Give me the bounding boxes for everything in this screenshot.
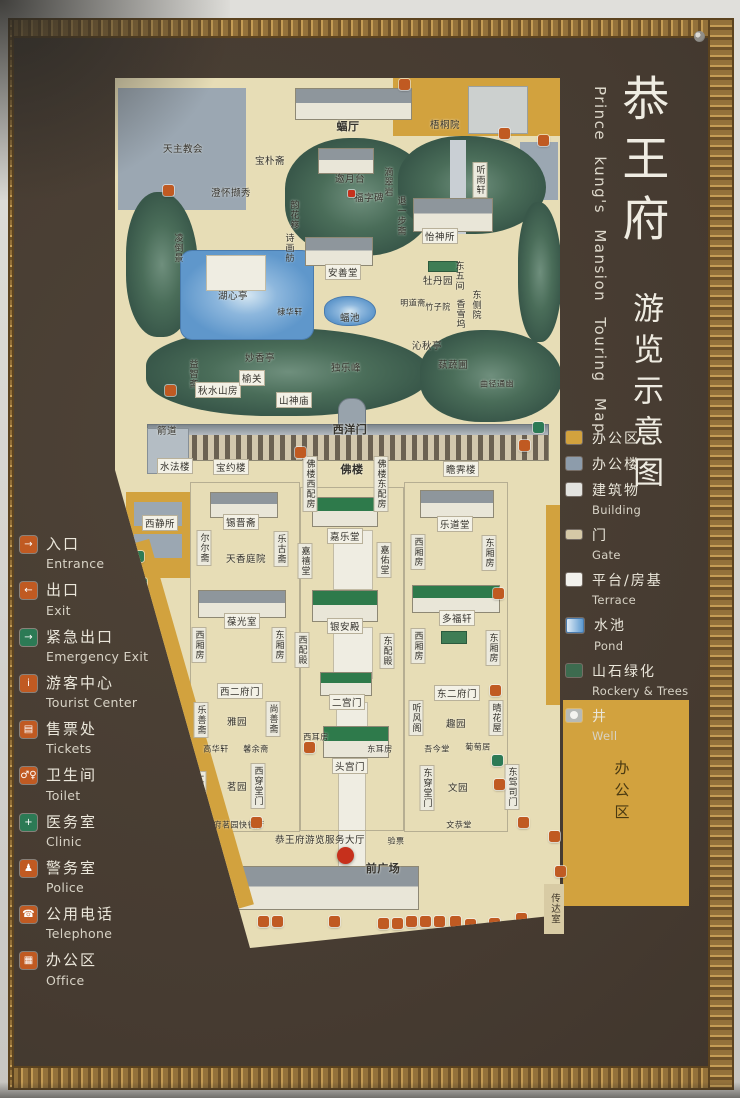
legend-item-telephone: ☎ 公用电话 Telephone	[20, 904, 160, 942]
legend-label-en: Police	[46, 880, 84, 895]
tickets-icon: ▤	[20, 721, 37, 738]
map-label: 宝约楼	[213, 459, 249, 475]
legend-item-tourist-center: i 游客中心 Tourist Center	[20, 673, 160, 711]
map-label: 蝠厅	[337, 118, 360, 134]
legend-label-en: Clinic	[46, 834, 82, 849]
map-label: 西二府门	[217, 683, 263, 699]
tickets-icon	[420, 916, 431, 927]
legend-label-en: Gate	[592, 548, 621, 562]
map-label: 葡萄居	[465, 742, 491, 753]
map-label: 东二府门	[434, 685, 480, 701]
map-label: 东五间	[453, 261, 466, 291]
legend-label-en: Office	[46, 973, 84, 988]
map-label: 福字碑	[354, 190, 384, 204]
gate-marker-icon	[258, 916, 269, 927]
legend-label-zh: 紧急出口	[46, 628, 114, 646]
building-swatch	[566, 483, 582, 496]
toilet-icon	[490, 685, 501, 696]
ledaotang-building	[420, 490, 494, 518]
police-icon: ♟	[20, 860, 37, 877]
map-label: 文恭堂	[446, 820, 472, 831]
map-label: 牡丹园	[423, 273, 453, 287]
legend-item-police: ♟ 警务室 Police	[20, 858, 160, 896]
map-label: 香雪坞	[454, 299, 467, 329]
map-label: 西厢房	[411, 628, 426, 664]
map-label: 听风阁	[409, 700, 424, 736]
legend-label-en: Pond	[594, 639, 623, 653]
futing-building	[295, 88, 412, 120]
anshantang-building	[305, 237, 373, 266]
map-label: 头宫门	[332, 758, 368, 774]
legend-label-zh: 卫生间	[46, 766, 97, 784]
legend-item-clinic: + 医务室 Clinic	[20, 812, 160, 850]
legend-label-zh: 出口	[46, 581, 80, 599]
jialetang-building	[312, 497, 378, 527]
map-label: 秋水山房	[195, 382, 241, 398]
police-icon	[518, 817, 529, 828]
toilet-icon	[538, 135, 549, 146]
current-location-dot	[337, 847, 354, 864]
ergongmen-building	[320, 672, 372, 696]
emergency-exit-icon	[533, 422, 544, 433]
map-label: 西耳房	[303, 732, 329, 743]
fuzibei-marker-icon	[348, 190, 355, 197]
map-label: 葆光室	[224, 613, 260, 629]
gate-marker-icon	[272, 916, 283, 927]
legend-label-en: Entrance	[46, 556, 104, 571]
title-english: Prince kung's Mansion Touring Map	[591, 86, 609, 434]
legend-label-en: Tourist Center	[46, 695, 137, 710]
legend-item-exit: ← 出口 Exit	[20, 580, 160, 618]
map-label: 东厢房	[272, 627, 287, 663]
map-label: 安善堂	[325, 264, 361, 280]
toilet-icon: ♂♀	[20, 767, 37, 784]
tourist-center-icon: i	[20, 675, 37, 692]
map-label: 竹子院	[425, 302, 451, 313]
legend-item-gate: 门 Gate	[566, 525, 726, 563]
legend-label-en: Emergency Exit	[46, 649, 148, 664]
exit-icon	[494, 779, 505, 790]
map-label: 西静所	[142, 515, 178, 531]
office-icon: ▦	[20, 952, 37, 969]
map-label: 天香庭院	[226, 551, 266, 565]
gate-swatch	[566, 530, 582, 539]
mounting-screw	[694, 31, 705, 42]
exit-icon	[399, 79, 410, 90]
rockery-swatch	[566, 664, 582, 677]
map-label: 蝠池	[340, 310, 360, 324]
map-label: 乐道堂	[437, 516, 473, 532]
legend-label-zh: 公用电话	[46, 905, 114, 923]
map-label: 怡神所	[422, 228, 458, 244]
map-label: 诗画舫	[283, 233, 296, 263]
tickets-icon	[406, 916, 417, 927]
legend-item-entrance: → 入口 Entrance	[20, 534, 160, 572]
map-label: 榆关	[239, 370, 265, 386]
tourist-center-icon	[304, 742, 315, 753]
map-label: 嘉乐堂	[327, 528, 363, 544]
map-label: 邀月台	[335, 171, 365, 185]
exit-icon	[295, 447, 306, 458]
map-label: 水法楼	[157, 458, 193, 474]
wall-shadow	[0, 0, 230, 200]
gate-marker-icon	[450, 916, 461, 927]
legend-label-zh: 办公区	[46, 951, 97, 969]
terrace-swatch	[566, 573, 582, 586]
map-label: 东驾司门	[505, 764, 520, 810]
pond-pavilion	[206, 255, 266, 291]
map-label: 乐善斋	[194, 702, 209, 738]
map-label: 山神庙	[276, 392, 312, 408]
yishensuo-building	[413, 198, 493, 232]
rear-building-arcade	[147, 435, 549, 461]
map-label: 听雨轩	[473, 162, 488, 198]
map-label: 茗园	[227, 779, 247, 793]
map-label: 西厢房	[192, 627, 207, 663]
map-label: 东配殿	[380, 633, 395, 669]
rockery-east-strip	[518, 202, 562, 342]
emergency-exit-icon: →	[20, 629, 37, 646]
title-main: 恭王府	[616, 74, 665, 254]
map-label: 佛楼东配房	[374, 456, 389, 512]
map-label: 西厢房	[411, 534, 426, 570]
exit-icon	[329, 916, 340, 927]
title-sub: 游览示意图	[628, 292, 662, 497]
map-label: 银安殿	[327, 618, 363, 634]
map-label: 尚善斋	[266, 701, 281, 737]
exit-icon	[493, 588, 504, 599]
legend-label-en: Well	[592, 729, 617, 743]
map-label: 宝朴斋	[255, 153, 285, 167]
map-label: 高华轩	[203, 744, 229, 755]
map-label: 明道斋	[400, 298, 426, 309]
map-label: 前广场	[366, 860, 401, 876]
map-label: 嘉禧堂	[298, 543, 313, 579]
legend-label-en: Toilet	[46, 788, 81, 803]
legend-label-zh: 井	[592, 709, 608, 725]
map-label: 二宫门	[329, 694, 365, 710]
map-label: 曲径通幽	[480, 379, 514, 390]
legend-item-toilet: ♂♀ 卫生间 Toilet	[20, 765, 160, 803]
map-label: 东耳房	[367, 744, 393, 755]
north-office-building	[468, 86, 528, 134]
map-label: 多福轩	[439, 610, 475, 626]
legend-label-en: Rockery & Trees	[592, 684, 688, 698]
legend-label-zh: 入口	[46, 535, 80, 553]
well-swatch	[566, 709, 582, 722]
map-label: 东穿堂门	[420, 765, 435, 811]
map-label: 东侧院	[470, 290, 483, 320]
legend-item-rockery: 山石绿化 Rockery & Trees	[566, 661, 726, 699]
map-label: 西穿堂门	[251, 763, 266, 809]
map-label: 凌倒景	[172, 233, 185, 263]
map-label: 尔尔斋	[197, 530, 212, 566]
bottom-shadow	[0, 1082, 740, 1098]
tickets-icon	[434, 916, 445, 927]
legend-item-well: 井 Well	[566, 706, 726, 744]
legend-label-en: Exit	[46, 603, 71, 618]
tickets-icon	[378, 918, 389, 929]
legend-label-en: Building	[592, 503, 641, 517]
map-label: 恭王府游览服务大厅	[275, 832, 365, 846]
duofuxuan-building	[412, 585, 500, 613]
office-area-swatch	[566, 431, 582, 444]
toilet-icon	[165, 385, 176, 396]
legend-label-zh: 门	[592, 528, 608, 544]
photo-background: 天主教会 宝朴斋 澄怀撷秀 凌倒景 湖心亭 韵花簃 诗画舫 蝠厅 梧桐院 邀月台…	[0, 0, 740, 1098]
map-label: 趣园	[446, 716, 466, 730]
telephone-icon: ☎	[20, 906, 37, 923]
map-label: 退一步斋	[395, 196, 408, 236]
tickets-icon	[392, 918, 403, 929]
map-label: 佛楼	[341, 461, 364, 477]
map-label: 蓺蔬圃	[438, 357, 468, 371]
legend-label-en: Terrace	[592, 593, 636, 607]
map-label: 沁秋亭	[412, 338, 442, 352]
map-label: 东厢房	[482, 535, 497, 571]
map-label: 梧桐院	[430, 117, 460, 131]
map-label: 瞻霁楼	[443, 461, 479, 477]
map-label: 箭道	[157, 423, 177, 437]
entrance-icon	[499, 128, 510, 139]
map-label: 锡晋斋	[223, 514, 259, 530]
map-label: 雅园	[227, 714, 247, 728]
legend-item-terrace: 平台/房基 Terrace	[566, 570, 726, 608]
pond-swatch	[566, 618, 584, 633]
legend-item-pond: 水池 Pond	[566, 615, 726, 653]
legend-label-zh: 售票处	[46, 720, 97, 738]
legend-label-en: Tickets	[46, 741, 92, 756]
legend-label-zh: 医务室	[46, 813, 97, 831]
map-label: 晴花屋	[489, 700, 504, 736]
legend-left: → 入口 Entrance ← 出口 Exit → 紧急出口 Emergency…	[20, 534, 160, 997]
map-label: 独乐峰	[331, 360, 361, 374]
map-label: 西洋门	[333, 421, 368, 437]
map-label: 妙香亭	[245, 350, 275, 364]
map-label: 乐古斋	[274, 531, 289, 567]
map-label: 湖心亭	[218, 288, 248, 302]
legend-label-zh: 山石绿化	[592, 664, 656, 680]
legend-label-zh: 游客中心	[46, 674, 114, 692]
map-label: 验票	[388, 836, 405, 847]
clinic-icon	[492, 755, 503, 766]
east-yellow-strip	[546, 505, 562, 705]
map-label: 西配殿	[295, 632, 310, 668]
entrance-icon: →	[20, 536, 37, 553]
map-label: 吾今堂	[424, 744, 450, 755]
legend-item-tickets: ▤ 售票处 Tickets	[20, 719, 160, 757]
map-label: 佛楼西配房	[303, 456, 318, 512]
map-label: 馨余斋	[243, 744, 269, 755]
office-building-swatch	[566, 457, 582, 470]
legend-label-zh: 警务室	[46, 859, 97, 877]
map-label: 嘉佑堂	[377, 542, 392, 578]
legend-label-zh: 水池	[594, 618, 626, 634]
clinic-icon: +	[20, 814, 37, 831]
map-label: 韵花簃	[288, 200, 301, 230]
legend-label-en: Telephone	[46, 926, 112, 941]
map-label: 东厢房	[486, 630, 501, 666]
legend-item-emergency-exit: → 紧急出口 Emergency Exit	[20, 627, 160, 665]
exit-icon	[519, 440, 530, 451]
telephone-icon	[251, 817, 262, 828]
map-label: 棣华轩	[277, 307, 303, 318]
map-label: 文园	[448, 780, 468, 794]
legend-label-zh: 平台/房基	[592, 573, 663, 589]
exit-icon: ←	[20, 582, 37, 599]
legend-item-office: ▦ 办公区 Office	[20, 950, 160, 988]
